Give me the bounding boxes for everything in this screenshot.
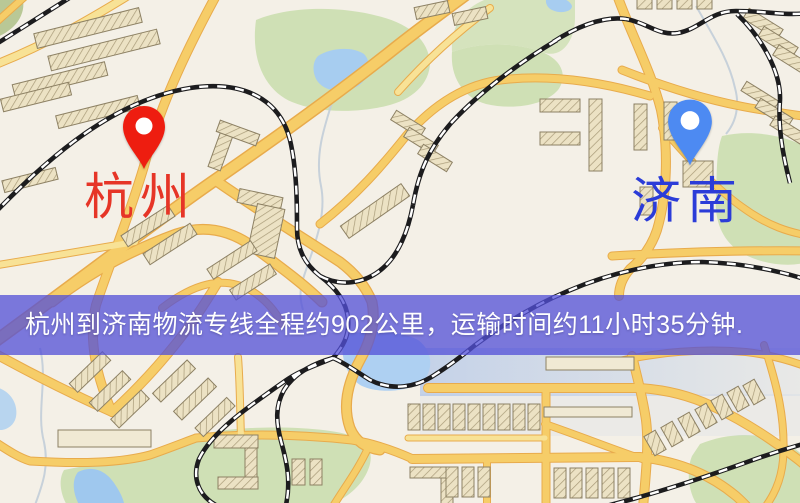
destination-pin-icon (665, 98, 715, 168)
route-info-banner: 杭州到济南物流专线全程约902公里，运输时间约11小时35分钟. (0, 295, 800, 355)
map-screenshot: 杭州 济南 杭州到济南物流专线全程约902公里，运输时间约11小时35分钟. (0, 0, 800, 503)
route-info-text: 杭州到济南物流专线全程约902公里，运输时间约11小时35分钟. (25, 311, 743, 339)
origin-city-label: 杭州 (84, 172, 196, 222)
map-canvas (0, 0, 800, 503)
destination-city-label: 济南 (631, 176, 743, 226)
origin-pin-icon (120, 105, 168, 171)
origin-pin-shape (123, 106, 165, 169)
destination-pin-shape (668, 100, 712, 166)
